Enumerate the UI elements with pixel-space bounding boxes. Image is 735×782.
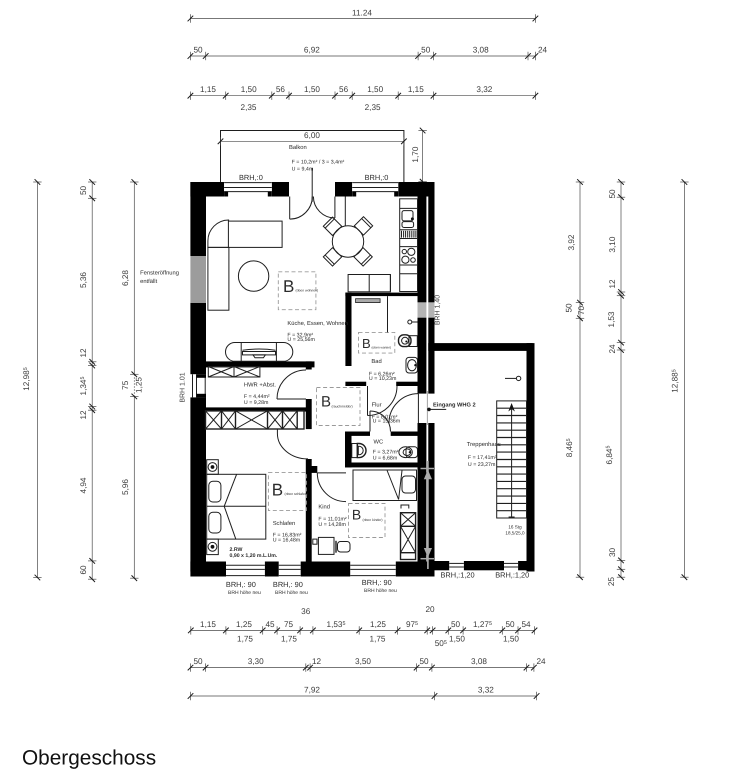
svg-text:4,94: 4,94 [79,477,88,493]
svg-text:1,25: 1,25 [370,620,386,629]
svg-text:Bad: Bad [371,358,381,365]
svg-text:45: 45 [265,620,275,629]
svg-text:12,985: 12,985 [22,367,31,391]
svg-text:1,50: 1,50 [503,635,519,644]
svg-text:60: 60 [79,565,88,575]
svg-text:Obergeschoss: Obergeschoss [22,747,156,770]
svg-text:6,28: 6,28 [121,270,130,286]
svg-text:Kind: Kind [318,503,330,510]
svg-text:(oben schlafen): (oben schlafen) [285,492,308,496]
svg-text:12: 12 [79,348,88,358]
svg-text:U = 10,23m: U = 10,23m [369,376,397,382]
svg-text:U = 15,36m: U = 15,36m [373,419,401,425]
svg-text:1,15: 1,15 [408,85,424,94]
svg-text:5,96: 5,96 [121,479,130,495]
svg-text:Schlafen: Schlafen [273,520,296,527]
svg-text:25: 25 [607,577,616,587]
svg-text:11.24: 11.24 [352,9,372,18]
svg-text:(oben kinder): (oben kinder) [363,518,383,522]
svg-text:1,50: 1,50 [241,85,257,94]
svg-text:BRH höhe neu: BRH höhe neu [228,590,261,596]
svg-text:B: B [272,481,283,500]
svg-text:6,00: 6,00 [304,131,320,140]
svg-text:50: 50 [193,657,203,666]
svg-text:50: 50 [421,46,431,55]
svg-text:WC: WC [374,438,384,445]
svg-text:BRH höhe neu: BRH höhe neu [275,590,308,596]
svg-text:BRH,:0: BRH,:0 [239,173,263,182]
svg-text:U = 14,28m: U = 14,28m [318,522,346,528]
svg-text:Flur: Flur [372,401,382,408]
svg-text:3,10: 3,10 [608,236,617,252]
svg-text:HWR +Abst.: HWR +Abst. [244,381,276,388]
svg-text:U = 6,68m: U = 6,68m [373,456,398,462]
svg-text:3,92: 3,92 [567,234,576,250]
svg-text:20: 20 [425,605,435,614]
svg-text:3,08: 3,08 [473,46,489,55]
svg-text:36: 36 [301,607,311,616]
svg-text:1,50: 1,50 [367,85,383,94]
svg-text:B: B [352,507,361,523]
svg-text:50: 50 [565,303,574,313]
svg-text:75: 75 [284,620,294,629]
svg-text:7,92: 7,92 [304,686,320,695]
svg-text:1,15: 1,15 [200,620,216,629]
svg-text:F = 10,2m² / 3 = 3,4m²: F = 10,2m² / 3 = 3,4m² [292,159,345,165]
svg-text:(oben wohnen): (oben wohnen) [296,289,319,293]
svg-text:B: B [321,394,331,411]
svg-text:entfällt: entfällt [140,278,157,285]
svg-text:Küche, Essen, Wohnen: Küche, Essen, Wohnen [287,320,347,327]
svg-text:BRH,:1,20: BRH,:1,20 [495,571,529,580]
svg-text:3,50: 3,50 [355,657,371,666]
svg-text:50: 50 [193,46,203,55]
svg-text:F = 4,44m²: F = 4,44m² [244,394,270,400]
svg-text:1,50: 1,50 [449,635,465,644]
svg-text:(oben warten): (oben warten) [372,346,392,350]
svg-text:1,25: 1,25 [236,620,252,629]
svg-text:BRH 1.01: BRH 1.01 [180,372,187,402]
svg-text:BRH,:1,20: BRH,:1,20 [441,571,475,580]
svg-text:U = 25,56m: U = 25,56m [287,337,315,343]
svg-text:1,15: 1,15 [200,85,216,94]
svg-text:30: 30 [608,548,617,558]
svg-text:B: B [362,336,371,351]
svg-text:56: 56 [339,85,349,94]
svg-text:1,50: 1,50 [304,85,320,94]
svg-text:6,92: 6,92 [304,46,320,55]
svg-text:U = 16,48m: U = 16,48m [273,538,301,544]
svg-text:12: 12 [608,279,617,289]
svg-text:BRH,: 90: BRH,: 90 [273,580,303,589]
svg-text:2,35: 2,35 [365,103,381,112]
svg-text:12: 12 [312,657,322,666]
svg-text:BRH,:0: BRH,:0 [365,173,389,182]
svg-text:1,53: 1,53 [607,311,616,327]
svg-text:(rauchmelder): (rauchmelder) [332,405,353,409]
svg-text:50: 50 [505,620,515,629]
svg-text:U = 9,28m: U = 9,28m [244,400,269,406]
svg-text:B: B [283,277,294,296]
svg-text:50: 50 [608,189,617,199]
svg-text:16 Stg: 16 Stg [508,525,522,530]
svg-text:U = 23,27m: U = 23,27m [468,462,496,468]
svg-text:Fensteröffnung: Fensteröffnung [140,269,179,276]
svg-text:1,75: 1,75 [370,635,386,644]
svg-text:12,885: 12,885 [671,369,680,393]
svg-text:70: 70 [577,306,586,316]
svg-text:0,90 x 1,20 m.L.Um.: 0,90 x 1,20 m.L.Um. [230,553,278,559]
svg-text:2,35: 2,35 [241,103,257,112]
svg-text:3,30: 3,30 [248,657,264,666]
svg-text:24: 24 [536,657,546,666]
svg-text:F = 17,41m²: F = 17,41m² [468,455,497,461]
svg-text:BRH höhe neu: BRH höhe neu [364,588,397,594]
svg-text:U = 9,4m: U = 9,4m [292,167,314,173]
svg-text:3,32: 3,32 [476,85,492,94]
svg-text:50: 50 [451,620,461,629]
svg-text:24: 24 [538,46,548,55]
svg-text:54: 54 [521,620,531,629]
svg-text:BRH 1,40: BRH 1,40 [435,295,442,325]
svg-text:BRH,: 90: BRH,: 90 [362,578,392,587]
svg-text:3,08: 3,08 [471,657,487,666]
svg-text:1,70: 1,70 [411,146,420,162]
svg-text:BRH,: 90: BRH,: 90 [226,580,256,589]
svg-text:50: 50 [79,186,88,196]
svg-text:56: 56 [276,85,286,94]
svg-text:75: 75 [121,380,130,390]
svg-text:24: 24 [608,344,617,354]
svg-text:3,32: 3,32 [478,686,494,695]
svg-text:Balkon: Balkon [289,144,307,151]
svg-text:Treppenhaus: Treppenhaus [467,441,501,448]
svg-text:18,5/25,0: 18,5/25,0 [505,531,525,536]
svg-text:1,75: 1,75 [237,635,253,644]
svg-text:1,75: 1,75 [281,635,297,644]
svg-text:12: 12 [79,410,88,420]
svg-text:Eingang WHG 2: Eingang WHG 2 [433,401,476,408]
svg-text:1,25: 1,25 [135,377,144,393]
svg-text:5,36: 5,36 [79,272,88,288]
svg-text:50: 50 [419,657,429,666]
